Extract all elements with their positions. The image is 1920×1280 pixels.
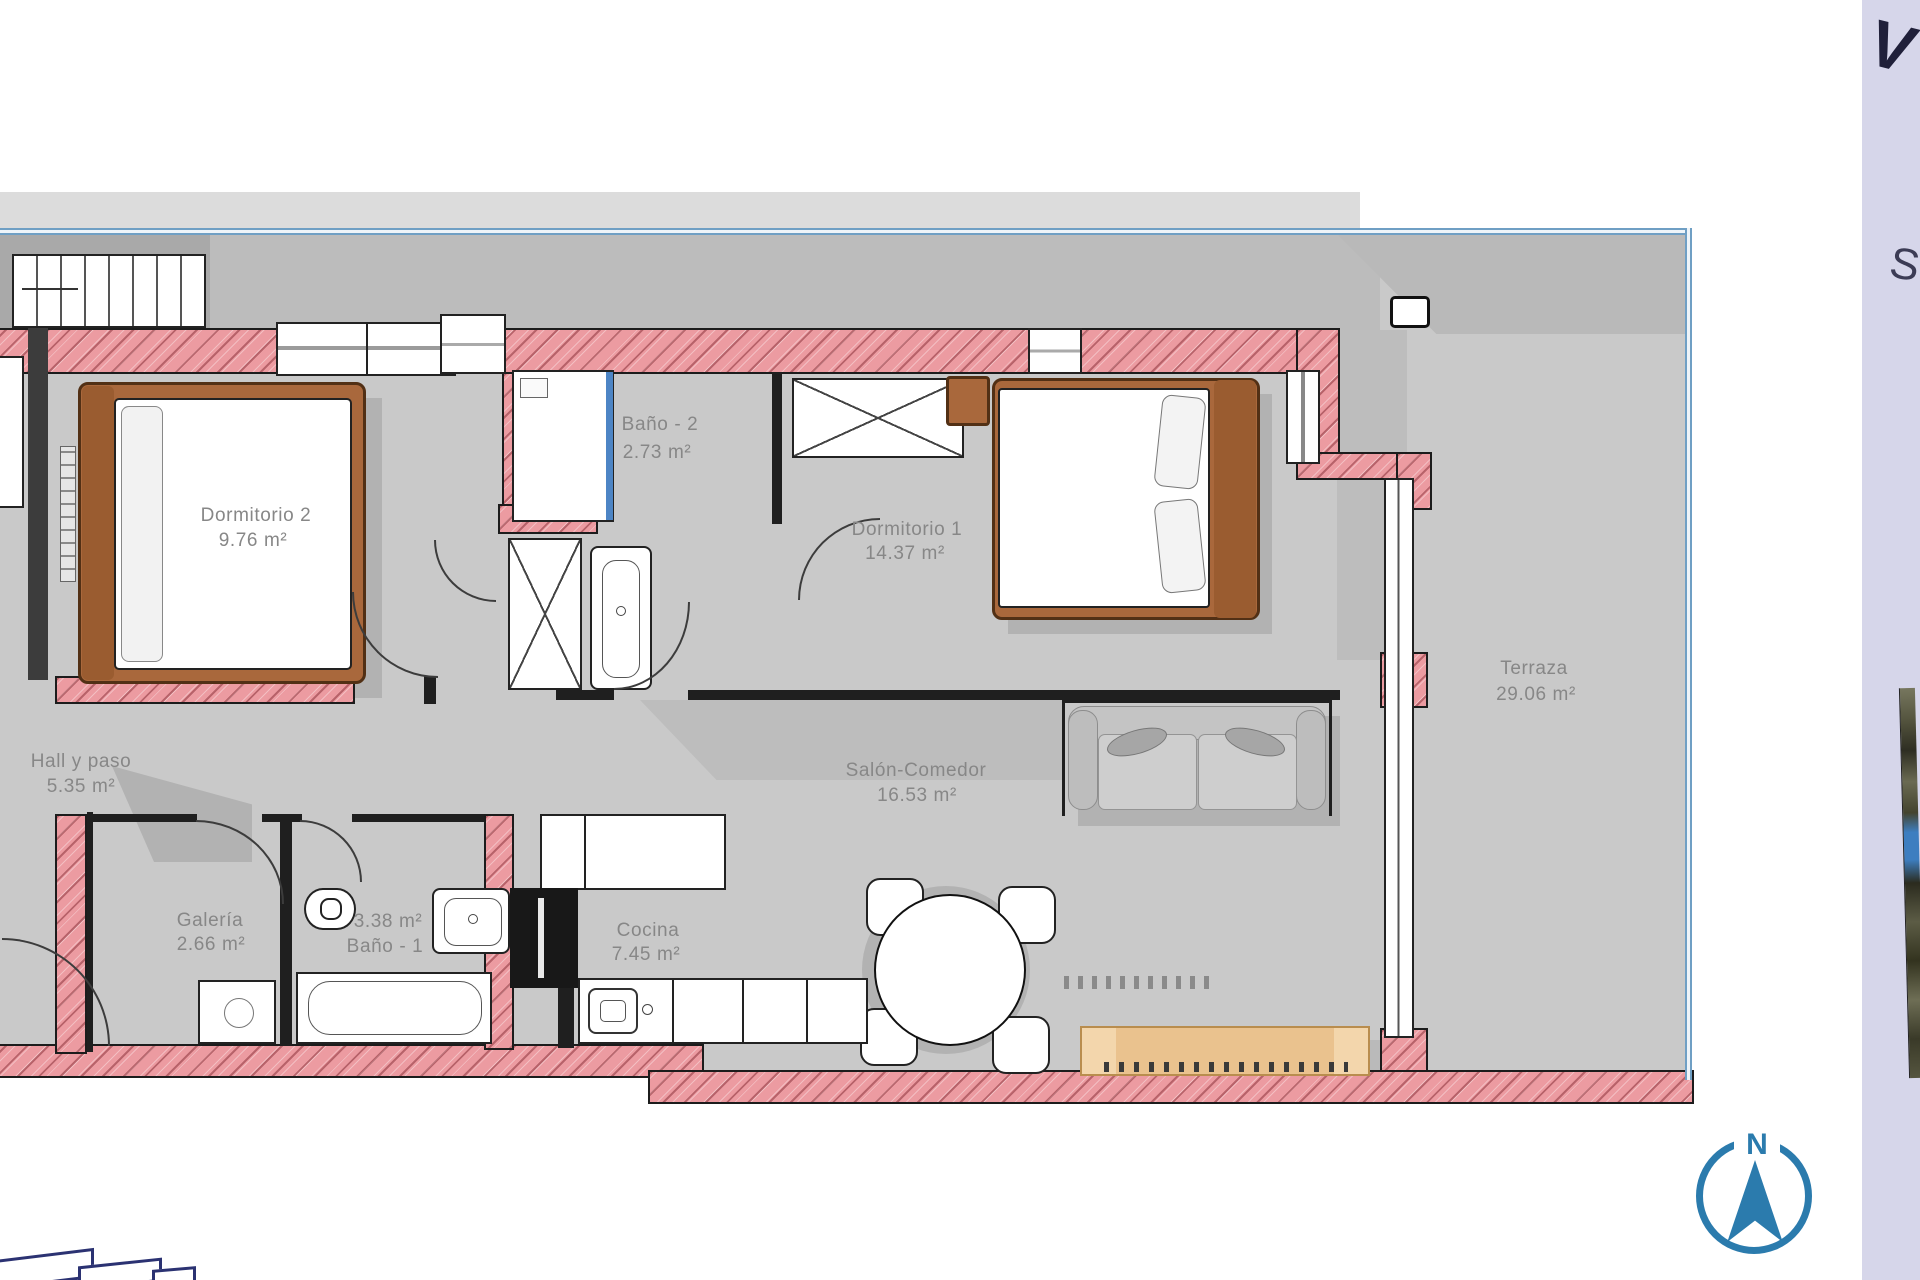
bed-dorm2-pillow <box>121 406 163 662</box>
side-panel-photo-strip <box>1899 688 1920 1078</box>
south-wall-left <box>0 1044 704 1078</box>
bed-neighbour-cut <box>0 356 24 508</box>
service-top-partition-c <box>352 814 484 822</box>
side-panel-letter-top: V <box>1858 5 1920 87</box>
room-area-hall: 5.35 m² <box>47 776 116 798</box>
window-small <box>1028 328 1082 374</box>
bed-dorm1-pillow-2 <box>1153 498 1206 594</box>
room-label-dormitorio2: Dormitorio 2 <box>201 505 312 527</box>
sliding-glass-doors <box>1384 478 1414 1038</box>
shower-glass-screen <box>606 372 613 520</box>
sofa <box>1068 706 1326 812</box>
glassdoor-dorm1 <box>1286 370 1320 464</box>
room-area-bano2: 2.73 m² <box>623 442 692 464</box>
room-area-dormitorio2: 9.76 m² <box>219 530 288 552</box>
service-top-partition-a <box>87 814 197 822</box>
galeria-bath-divider <box>280 822 292 1046</box>
toilet <box>304 888 356 930</box>
room-label-galeria: Galería <box>177 910 244 932</box>
plan-frame-right <box>1685 228 1692 1080</box>
side-panel-letter-mid: S <box>1886 238 1920 292</box>
room-area-salon: 16.53 m² <box>877 785 957 807</box>
bed-dorm1-headboard <box>1214 380 1256 618</box>
room-label-hall: Hall y paso <box>31 751 132 773</box>
dorm2-door-jamb <box>424 676 436 704</box>
bench <box>1080 1026 1370 1076</box>
kitchen-tall-cabinet <box>510 888 578 988</box>
corner-sketch-cutoff <box>0 1246 214 1280</box>
room-area-terraza: 29.06 m² <box>1496 684 1576 706</box>
nightstand-dorm1 <box>946 376 990 426</box>
room-label-dormitorio1: Dormitorio 1 <box>852 519 963 541</box>
room-area-galeria: 2.66 m² <box>177 934 246 956</box>
compass-north-icon: N <box>1692 1132 1822 1262</box>
room-area-dormitorio1: 14.37 m² <box>865 543 945 565</box>
bathtub <box>296 972 492 1044</box>
bed-dorm2-headboard <box>82 386 114 680</box>
washbasin-bath1 <box>432 888 510 954</box>
wardrobe-hall <box>508 538 582 690</box>
room-label-cocina: Cocina <box>617 920 680 942</box>
bath2-east-partition <box>772 372 782 524</box>
plan-frame-top <box>0 228 1692 235</box>
salon-north-partition <box>688 690 1340 700</box>
salon-north-partition-stub <box>556 690 614 700</box>
kitchen-counter <box>540 814 726 890</box>
north-wall <box>0 328 1340 374</box>
room-label-salon: Salón-Comedor <box>846 760 987 782</box>
floor-plan-page: Dormitorio 2 9.76 m² Baño - 2 2.73 m² Do… <box>0 0 1920 1280</box>
kitchen-sink-row <box>578 978 868 1044</box>
shower-tray <box>512 370 614 522</box>
compass-n-label: N <box>1742 1128 1772 1162</box>
window-bath2 <box>440 314 506 374</box>
room-area-bano1: 3.38 m² <box>354 911 423 933</box>
wardrobe-dorm1 <box>792 378 964 458</box>
room-area-cocina: 7.45 m² <box>612 944 681 966</box>
room-label-bano1: Baño - 1 <box>347 936 424 958</box>
washing-machine <box>198 980 276 1044</box>
dining-table <box>874 894 1026 1046</box>
utility-box <box>1390 296 1430 328</box>
room-label-terraza: Terraza <box>1500 658 1568 680</box>
service-top-partition-b <box>262 814 302 822</box>
stairs <box>12 254 206 328</box>
room-label-bano2: Baño - 2 <box>622 414 699 436</box>
wall-insulation-ticks <box>60 446 76 582</box>
window-double <box>276 322 456 376</box>
radiator-ticks <box>1064 976 1214 989</box>
party-wall <box>28 296 48 680</box>
side-panel: V S <box>1862 0 1920 1280</box>
stairs-direction-line <box>22 288 78 290</box>
